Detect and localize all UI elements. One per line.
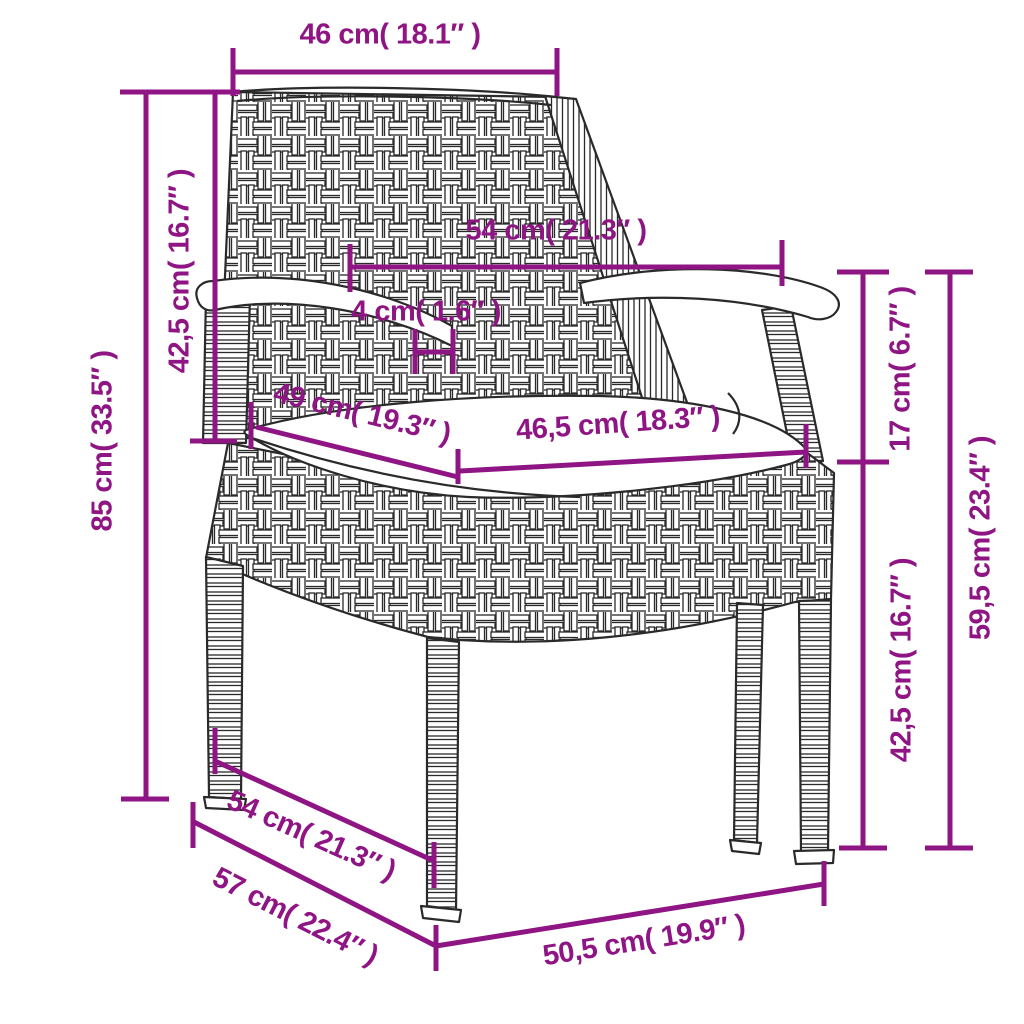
dim-label-armrest-height: 59,5 cm( 23.4″ ) — [965, 436, 998, 640]
dim-label-total-height: 85 cm( 33.5″ ) — [87, 351, 120, 532]
dim-label-backrest-height: 42,5 cm( 16.7″ ) — [164, 169, 197, 373]
dim-label-armrest-thickness: 4 cm( 1.6″ ) — [351, 296, 501, 329]
dim-label-seat-height: 42,5 cm( 16.7″ ) — [886, 558, 919, 762]
dim-label-armrest-to-seat: 17 cm( 6.7″ ) — [885, 286, 918, 451]
chair-line-art — [0, 0, 1024, 1024]
dim-label-back-width: 46 cm( 18.1″ ) — [300, 19, 481, 52]
dim-label-armrest-span: 54 cm( 21.3″ ) — [466, 215, 647, 248]
chair-left-arm-post — [203, 296, 250, 443]
dimension-diagram: 46 cm( 18.1″ ) 42,5 cm( 16.7″ ) 85 cm( 3… — [0, 0, 1024, 1024]
